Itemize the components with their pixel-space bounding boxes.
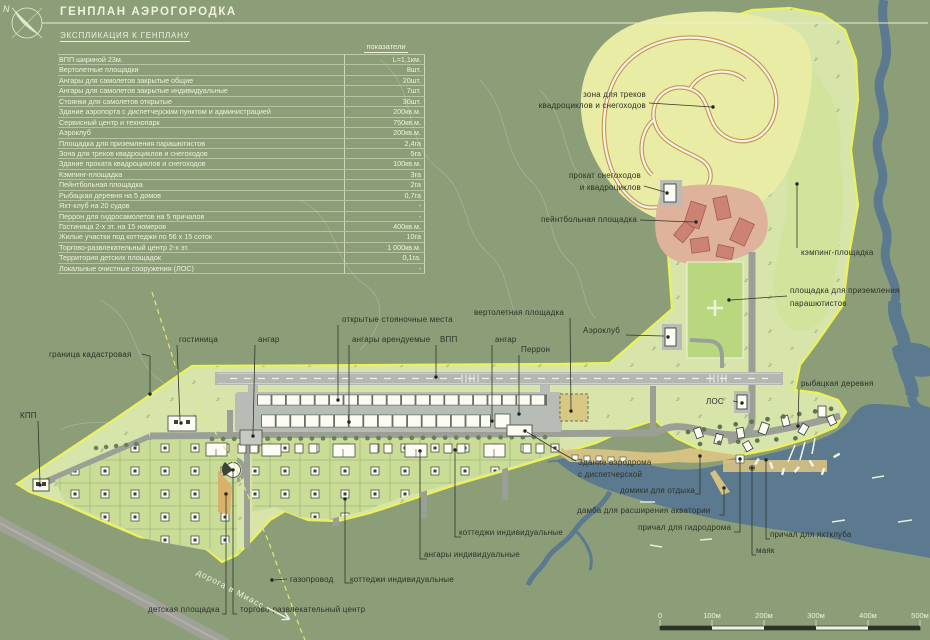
table-row: Ангары для самолетов закрытые индивидуал… xyxy=(58,86,425,96)
mall-building xyxy=(222,462,241,478)
svg-text:с диспетчерской: с диспетчерской xyxy=(578,470,642,479)
title-block: ГЕНПЛАН АЭРОГОРОДКА ЭКСПЛИКАЦИЯ К ГЕНПЛА… xyxy=(60,6,237,43)
label-camping: кэмпинг-площадка xyxy=(801,248,874,257)
table-row: Стоянки для самолетов открытые30шт. xyxy=(58,97,425,107)
label-hotel: гостиница xyxy=(179,335,218,344)
table-row: Перрон для гидросамолетов на 5 причалов- xyxy=(58,212,425,222)
svg-text:квадроциклов и снегоходов: квадроциклов и снегоходов xyxy=(539,101,646,110)
svg-text:парашютистов: парашютистов xyxy=(790,299,847,308)
table-row: Здание проката квадроциклов и снегоходов… xyxy=(58,159,425,169)
label-pier-hydro: причал для гидродрома xyxy=(638,523,731,532)
table-row: Площадка для приземления парашютистов2,4… xyxy=(58,139,425,149)
table-row: Сервисный центр и технопарк750кв.м. xyxy=(58,118,425,128)
table-row: Ангары для самолетов закрытые общие20шт. xyxy=(58,76,425,86)
label-gas: газопровод xyxy=(290,575,334,584)
page-subtitle: ЭКСПЛИКАЦИЯ К ГЕНПЛАНУ xyxy=(60,31,190,42)
label-damba: дамба для расширения акватории xyxy=(577,506,710,515)
table-row: Яхт-клуб на 20 судов- xyxy=(58,201,425,211)
table-row: Зона для треков квадроциклов и снегоходо… xyxy=(58,149,425,159)
table-row: Торгово-развлекательный центр 2-х эт.1 0… xyxy=(58,243,425,253)
genplan-drawing: зона для треков квадроциклов и снегоходо… xyxy=(0,0,930,640)
label-track-zone: зона для треков xyxy=(583,90,646,99)
airport-building xyxy=(507,425,532,436)
label-aeroclub: Аэроклуб xyxy=(583,326,620,335)
label-mayak: маяк xyxy=(756,546,775,555)
svg-text:100м: 100м xyxy=(703,611,721,620)
table-row: Территория детских площадок0,1га. xyxy=(58,253,425,263)
aeroclub-building xyxy=(662,324,682,350)
rent-building xyxy=(660,180,682,206)
label-vpp: ВПП xyxy=(440,335,457,344)
north-letter: N xyxy=(3,4,10,14)
page-title: ГЕНПЛАН АЭРОГОРОДКА xyxy=(60,6,237,18)
label-parachute: площадка для приземления xyxy=(790,286,899,295)
svg-text:200м: 200м xyxy=(755,611,773,620)
table-row: ВПП шириной 23м.L=1,1км. xyxy=(58,55,425,65)
label-playground: детская площадка xyxy=(148,605,220,614)
helipad xyxy=(560,394,588,421)
label-los: ЛОС xyxy=(706,397,724,406)
label-hangar-left: ангар xyxy=(258,335,280,344)
label-open-parking: открытые стояночные места xyxy=(342,315,453,324)
table-row: Кэмпинг-площадка3га xyxy=(58,170,425,180)
table-row: Здание аэропорта с диспетчерским пунктом… xyxy=(58,107,425,117)
label-rent: прокат снегоходов xyxy=(569,171,641,180)
table-row: Вертолетные площадки8шт. xyxy=(58,65,425,75)
label-domiki: домики для отдыха xyxy=(620,486,695,495)
table-row: Аэроклуб200кв.м. xyxy=(58,128,425,138)
label-airport-building: Здание аэродрома xyxy=(578,458,652,467)
svg-text:0: 0 xyxy=(658,611,662,620)
label-heliport: вертолетная площадка xyxy=(474,308,564,317)
label-cadastral: граница кадастровая xyxy=(49,350,132,359)
label-kpp: КПП xyxy=(20,411,37,420)
hangar-left-building xyxy=(240,430,262,445)
table-row: Рыбацкая деревня на 5 домов0,7га xyxy=(58,191,425,201)
table-row: Гостиница 2-х эт. на 15 номеров400кв.м. xyxy=(58,222,425,232)
svg-text:300м: 300м xyxy=(807,611,825,620)
label-perron: Перрон xyxy=(521,345,550,354)
svg-text:500м: 500м xyxy=(911,611,929,620)
label-hangar-right: ангар xyxy=(495,335,517,344)
explication-table: ВПП шириной 23м.L=1,1км. Вертолетные пло… xyxy=(58,54,425,274)
label-paintball: пейнтбольная площадка xyxy=(541,215,637,224)
svg-text:400м: 400м xyxy=(859,611,877,620)
table-column-header: показатели xyxy=(347,42,425,51)
label-hangars-rented: ангары арендуемые xyxy=(352,335,431,344)
svg-text:и квадроциклов: и квадроциклов xyxy=(580,183,641,192)
table-row: Жилые участки под коттеджи по 56 х 15 со… xyxy=(58,232,425,242)
label-hangars-ind: ангары индивидуальные xyxy=(424,550,520,559)
label-cottages-right: коттеджи индивидуальные xyxy=(459,528,563,537)
runway xyxy=(215,372,783,385)
label-fishing-village: рыбацкая деревня xyxy=(801,379,874,388)
table-row: Локальные очистные сооружения (ЛОС)- xyxy=(58,264,425,274)
table-row: Пейнтбольная площадка2га xyxy=(58,180,425,190)
label-pier-yacht: причал для яхтклуба xyxy=(770,530,852,539)
label-cottages-mid: коттеджи индивидуальные xyxy=(350,575,454,584)
